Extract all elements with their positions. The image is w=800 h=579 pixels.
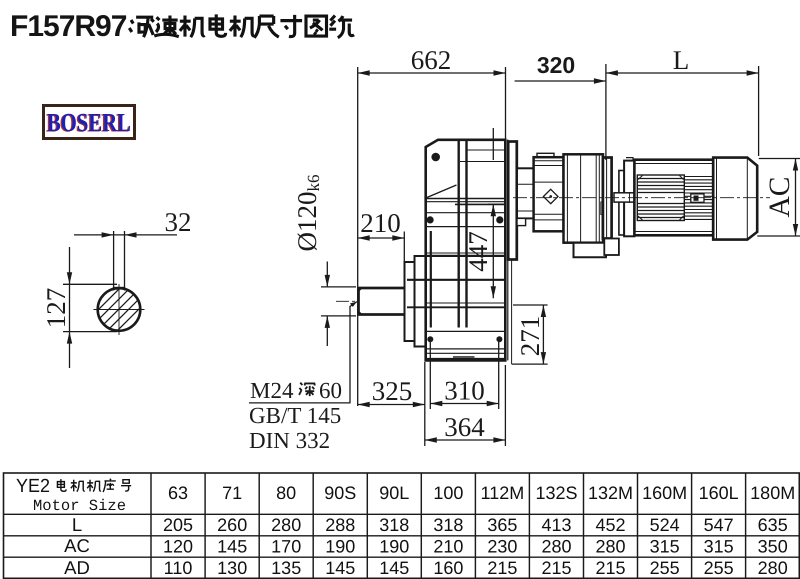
svg-text:32: 32 [165,207,192,237]
svg-text:63: 63 [168,483,188,503]
svg-text:71: 71 [222,483,242,503]
svg-text:127: 127 [41,288,71,329]
svg-text:215: 215 [541,558,571,578]
svg-text:310: 310 [444,376,485,406]
svg-text:145: 145 [217,537,247,557]
svg-text:F157R97: F157R97 [10,10,127,43]
svg-text:L: L [673,45,690,75]
svg-text:YE2: YE2 [16,476,50,497]
svg-text:215: 215 [487,558,517,578]
svg-text:365: 365 [487,515,517,535]
svg-text:80: 80 [276,483,296,503]
svg-text:180M: 180M [750,483,795,503]
svg-text:413: 413 [541,515,571,535]
svg-text:318: 318 [379,515,409,535]
svg-text:112M: 112M [481,483,525,503]
svg-text:447: 447 [463,231,493,272]
svg-text:BOSERL: BOSERL [47,108,131,137]
svg-text:662: 662 [411,45,452,75]
svg-text:350: 350 [758,537,788,557]
svg-text:90L: 90L [379,483,409,503]
svg-text:210: 210 [360,208,401,238]
svg-text:60: 60 [319,378,342,403]
svg-text:635: 635 [758,515,788,535]
svg-text:AC: AC [764,177,796,218]
svg-text:325: 325 [372,376,413,406]
svg-text:190: 190 [325,537,355,557]
svg-text:Motor Size: Motor Size [33,497,126,515]
svg-text:280: 280 [758,558,788,578]
svg-text:L: L [72,514,82,535]
svg-text:210: 210 [433,537,463,557]
svg-text:DIN 332: DIN 332 [249,428,330,453]
svg-text:110: 110 [164,558,193,578]
svg-text:170: 170 [271,537,301,557]
svg-text:190: 190 [379,537,409,557]
svg-text:547: 547 [704,515,734,535]
svg-text:100: 100 [433,483,463,503]
svg-text:132S: 132S [535,483,577,503]
svg-text:132M: 132M [588,483,633,503]
svg-text:M24: M24 [250,378,294,403]
svg-text:160: 160 [433,558,463,578]
svg-text:280: 280 [541,537,571,557]
svg-text:452: 452 [595,515,625,535]
svg-text:205: 205 [163,515,193,535]
svg-text:90S: 90S [324,483,356,503]
svg-text:230: 230 [487,537,517,557]
svg-text:215: 215 [595,558,625,578]
svg-text:315: 315 [650,537,680,557]
svg-text:280: 280 [271,515,301,535]
svg-text:318: 318 [433,515,463,535]
svg-text:255: 255 [650,558,680,578]
svg-text:255: 255 [704,558,734,578]
svg-text:315: 315 [704,537,734,557]
svg-text:260: 260 [217,515,247,535]
svg-text:GB/T 145: GB/T 145 [249,403,341,428]
svg-text:160L: 160L [699,483,739,503]
svg-text:AD: AD [64,557,90,578]
svg-text:160M: 160M [642,483,687,503]
svg-text:524: 524 [650,515,680,535]
svg-text:271: 271 [515,316,545,357]
svg-text:288: 288 [325,515,355,535]
svg-text:280: 280 [595,537,625,557]
svg-text:364: 364 [444,412,485,442]
svg-text:AC: AC [64,535,90,556]
svg-text:145: 145 [379,558,409,578]
svg-text:120: 120 [163,537,193,557]
svg-text:320: 320 [537,52,575,78]
svg-text:130: 130 [217,558,247,578]
svg-text:135: 135 [271,558,301,578]
svg-text:145: 145 [325,558,355,578]
